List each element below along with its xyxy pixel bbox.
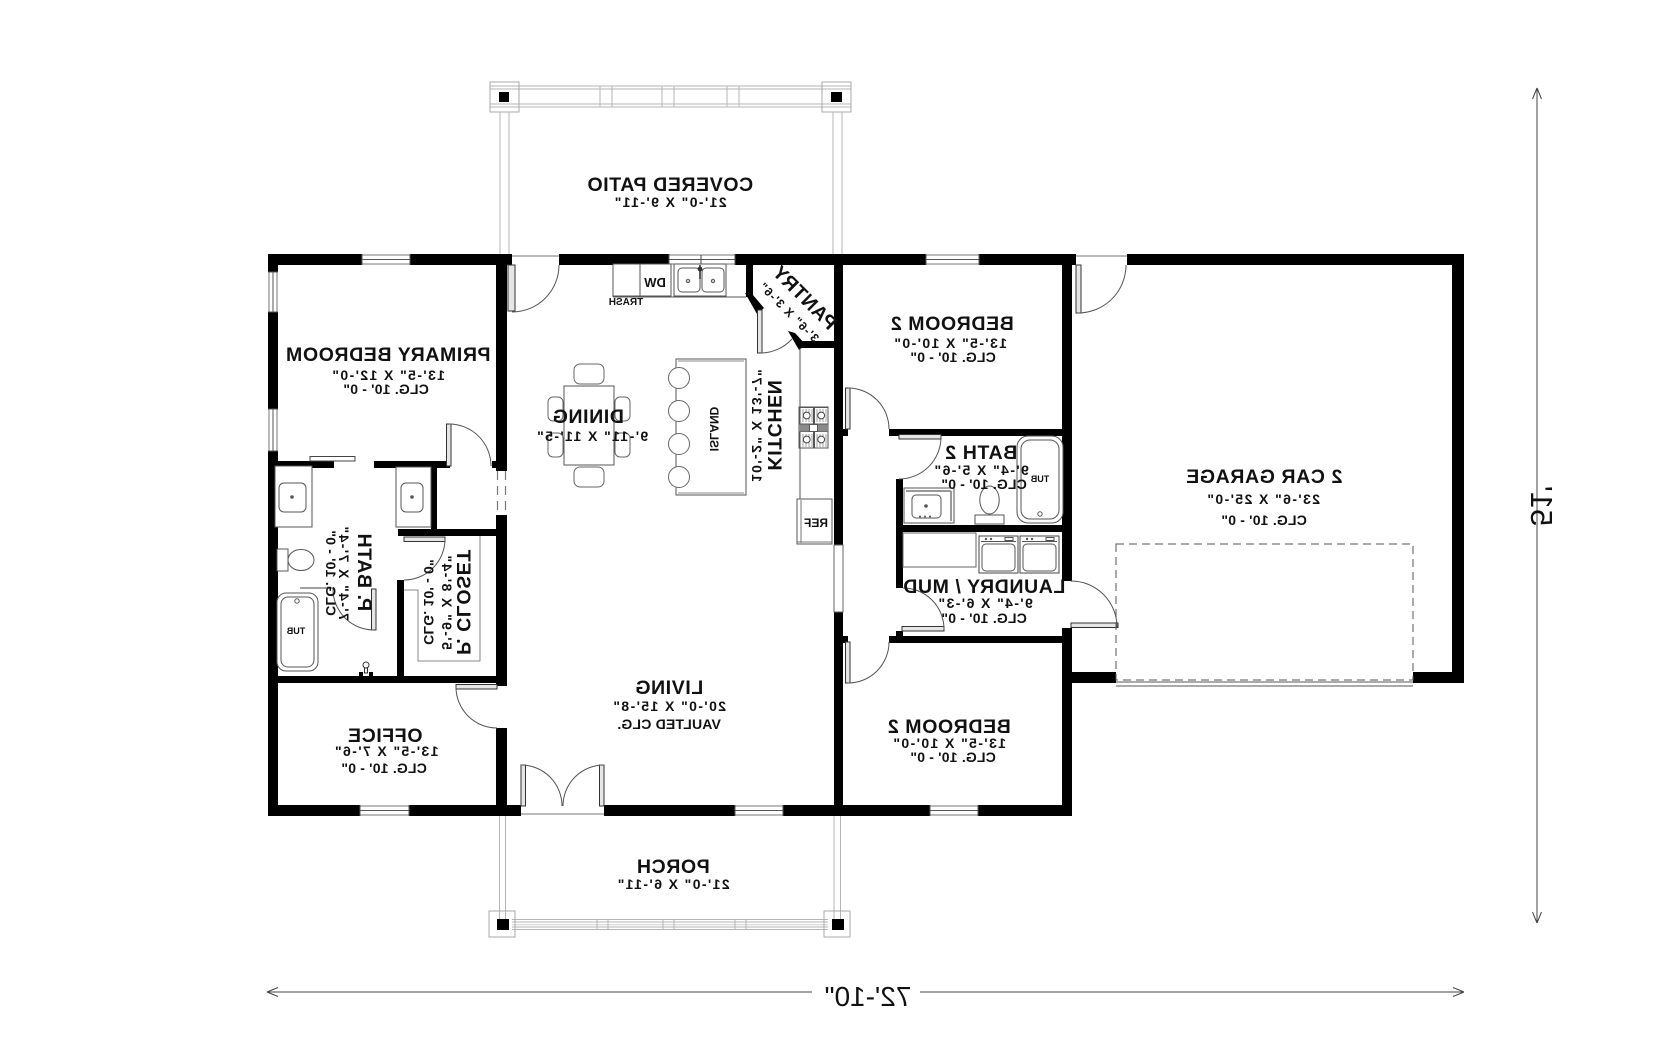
svg-text:CLG. 10' - 0": CLG. 10' - 0"	[421, 559, 437, 645]
svg-text:9'-4" X 6'-3": 9'-4" X 6'-3"	[937, 595, 1033, 611]
svg-text:21'-0" X 6'-11": 21'-0" X 6'-11"	[616, 876, 729, 892]
svg-text:KITCHEN: KITCHEN	[763, 380, 785, 471]
svg-text:CLG. 10' - 0": CLG. 10' - 0"	[910, 749, 996, 765]
svg-text:CLG. 10' - 0": CLG. 10' - 0"	[941, 476, 1027, 492]
svg-text:10'-2" X 13'-7": 10'-2" X 13'-7"	[749, 368, 765, 482]
svg-text:ISLAND: ISLAND	[707, 406, 721, 451]
svg-text:LIVING: LIVING	[635, 677, 704, 699]
svg-text:5'-9" X 8'-4": 5'-9" X 8'-4"	[439, 554, 455, 650]
svg-text:COVERED PATIO: COVERED PATIO	[587, 174, 753, 196]
svg-text:REF: REF	[804, 516, 828, 530]
svg-text:2 CAR GARAGE: 2 CAR GARAGE	[1186, 466, 1343, 488]
svg-text:CLG. 10' - 0": CLG. 10' - 0"	[941, 610, 1027, 626]
svg-text:21'-0" X 9'-11": 21'-0" X 9'-11"	[613, 194, 726, 210]
svg-text:BEDROOM 2: BEDROOM 2	[890, 313, 1014, 335]
svg-text:BATH 2: BATH 2	[945, 442, 1018, 464]
svg-text:CLG. 10' - 0": CLG. 10' - 0"	[323, 530, 339, 616]
svg-text:PORCH: PORCH	[636, 856, 709, 878]
svg-text:DW: DW	[643, 275, 665, 290]
svg-text:TUB: TUB	[1030, 474, 1049, 484]
svg-text:23'-6" X 25'-0": 23'-6" X 25'-0"	[1206, 491, 1320, 507]
svg-text:P. BATH: P. BATH	[353, 533, 375, 611]
svg-text:9'-11" X 11'-5": 9'-11" X 11'-5"	[536, 428, 649, 444]
svg-text:TUB: TUB	[286, 626, 305, 636]
svg-text:CLG. 10' - 0": CLG. 10' - 0"	[343, 381, 429, 397]
svg-text:13'-5" X 7'-6": 13'-5" X 7'-6"	[334, 743, 439, 759]
svg-text:51': 51'	[1524, 486, 1559, 526]
svg-text:DINING: DINING	[552, 406, 624, 428]
svg-text:20'-0" X 15'-8": 20'-0" X 15'-8"	[612, 698, 726, 714]
svg-text:72'-10": 72'-10"	[825, 981, 912, 1012]
svg-text:PRIMARY BEDROOM: PRIMARY BEDROOM	[285, 344, 490, 366]
svg-text:TRASH: TRASH	[609, 297, 643, 308]
svg-text:VAULTED CLG.: VAULTED CLG.	[617, 716, 721, 732]
svg-text:CLG. 10' - 0": CLG. 10' - 0"	[910, 349, 996, 365]
svg-text:CLG. 10' - 0": CLG. 10' - 0"	[341, 760, 427, 776]
svg-text:CLG. 10' - 0": CLG. 10' - 0"	[1221, 512, 1307, 528]
